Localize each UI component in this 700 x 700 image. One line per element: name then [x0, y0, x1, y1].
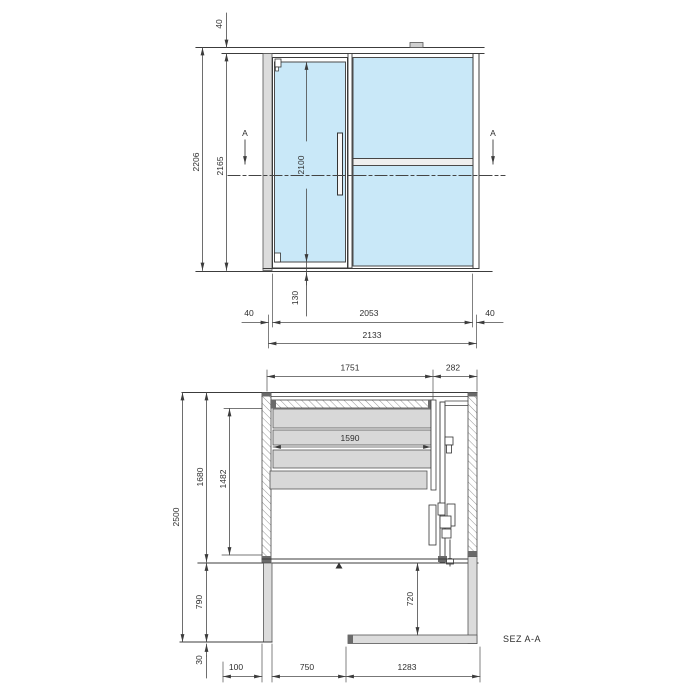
sec-roller-box-lower [447, 445, 452, 453]
sec-panel-3 [273, 450, 431, 468]
drawing-svg: A A 2206 40 2165 2100 130 40 2053 40 213… [0, 0, 700, 700]
sec-right-column-bottom-cap [468, 551, 477, 557]
sec-right-column-top-cap [468, 393, 477, 397]
sec-left-column-top-cap [262, 393, 271, 397]
door-handle-bar [338, 133, 343, 195]
dim-40-right-label: 40 [485, 308, 495, 318]
door-glass-panel [275, 62, 346, 262]
dim-2133-label: 2133 [363, 330, 382, 340]
sec-top-rail [271, 400, 433, 408]
door-top-hinge-pin [276, 67, 279, 71]
sec-right-column [468, 393, 477, 557]
technical-drawing-canvas: A A 2206 40 2165 2100 130 40 2053 40 213… [0, 0, 700, 700]
sec-lock-plate [429, 505, 436, 545]
right-frame-post [473, 54, 479, 269]
sec-panel-stile [431, 400, 436, 490]
dim-40-top-label: 40 [214, 19, 224, 29]
dim-40-left-label: 40 [244, 308, 254, 318]
sec-roller-box-upper [445, 437, 453, 445]
dim-2053-label: 2053 [360, 308, 379, 318]
transom-rail [353, 159, 473, 166]
fixed-glass-upper [353, 58, 473, 159]
track-tab [410, 43, 423, 48]
dim-1590-label: 1590 [341, 433, 360, 443]
dim-30-label: 30 [194, 655, 204, 665]
dim-1482-label: 1482 [218, 469, 228, 488]
left-wall-strip [263, 54, 272, 271]
sec-floor-slab-cap [348, 635, 353, 644]
dim-750-label: 750 [300, 662, 314, 672]
dim-720-label: 720 [405, 592, 415, 606]
sec-lock-body-c [440, 516, 451, 528]
door-bottom-hinge [275, 253, 281, 262]
section-caption: SEZ A-A [503, 634, 541, 644]
section-marker-right-label: A [490, 128, 496, 138]
sec-left-pier [264, 563, 273, 642]
dim-2165-label: 2165 [215, 156, 225, 175]
dim-790-label: 790 [194, 595, 204, 609]
section-marker-left-label: A [242, 128, 248, 138]
dim-2100-label: 2100 [296, 155, 306, 174]
dim-1751-label: 1751 [341, 363, 360, 373]
dim-1680-label: 1680 [195, 467, 205, 486]
dim-130-label: 130 [290, 291, 300, 305]
dim-100-label: 100 [229, 662, 243, 672]
sec-panel-1 [273, 409, 431, 428]
sec-lock-body-a [438, 503, 445, 515]
fixed-glass-lower [353, 166, 473, 267]
dim-282-label: 282 [446, 363, 460, 373]
sec-floor-slab [348, 635, 477, 644]
section-view: 2500 1680 1482 790 30 720 1751 282 1590 [171, 363, 541, 683]
sec-panel-4 [270, 471, 427, 489]
front-elevation-view: A A 2206 40 2165 2100 130 40 2053 40 213… [191, 13, 505, 348]
door-top-hinge [275, 59, 281, 67]
divider-post [348, 54, 352, 269]
dim-1283-label: 1283 [398, 662, 417, 672]
sec-lock-body-d [442, 529, 451, 538]
dim-2206-label: 2206 [191, 152, 201, 171]
dim-2500-label: 2500 [171, 507, 181, 526]
sec-right-pier [468, 557, 477, 644]
sec-top-rail-left-cap [271, 400, 276, 408]
